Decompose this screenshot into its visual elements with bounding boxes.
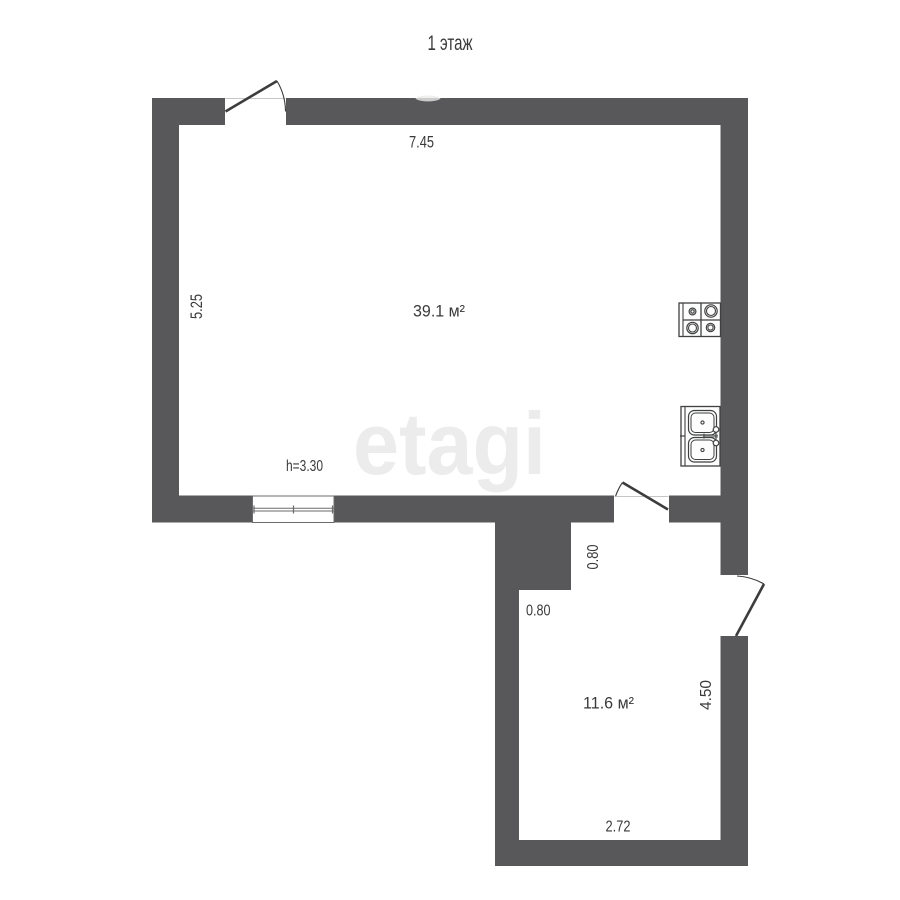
svg-text:0.80: 0.80 — [585, 544, 602, 569]
svg-text:7.45: 7.45 — [409, 133, 434, 152]
svg-text:0.80: 0.80 — [526, 603, 551, 620]
svg-text:4.50: 4.50 — [698, 680, 715, 710]
svg-text:5.25: 5.25 — [187, 294, 206, 319]
svg-text:h=3.30: h=3.30 — [286, 458, 323, 475]
svg-text:2.72: 2.72 — [606, 819, 631, 836]
svg-text:etagi: etagi — [353, 394, 546, 493]
svg-text:1 этаж: 1 этаж — [428, 32, 473, 55]
svg-text:11.6 м²: 11.6 м² — [583, 694, 634, 713]
svg-text:39.1 м²: 39.1 м² — [413, 302, 465, 321]
